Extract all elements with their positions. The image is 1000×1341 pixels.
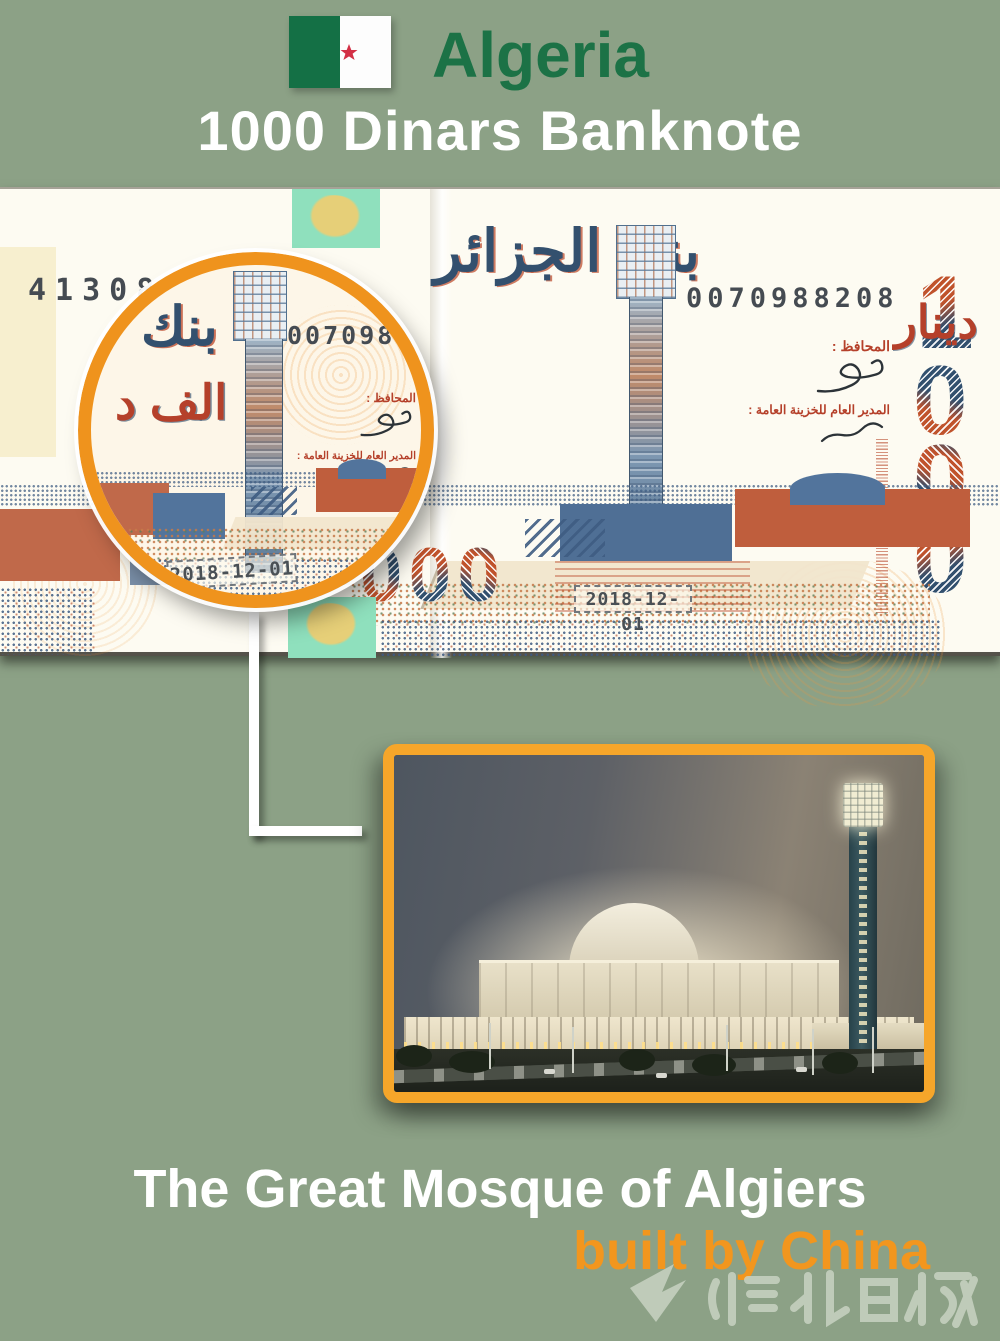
light-pole	[489, 1023, 491, 1069]
hologram-map-blob	[302, 603, 360, 649]
car	[544, 1069, 555, 1074]
governor-signature-icon	[348, 406, 416, 444]
page-subtitle: 1000 Dinars Banknote	[0, 98, 1000, 163]
magnifier-content: بنك الف د 0070988 المحافظ : المدير العام…	[91, 265, 421, 595]
hand-icon	[630, 1264, 686, 1322]
light-pole	[726, 1025, 728, 1071]
governor-label: المحافظ :	[291, 391, 416, 406]
signature-block: المحافظ : المدير العام للخزينة العامة :	[730, 337, 890, 445]
watermark-character	[908, 1276, 974, 1324]
minaret-drawing-cap	[616, 225, 676, 299]
tree	[619, 1049, 655, 1071]
magnified-serial-fragment: 0070988	[287, 321, 413, 350]
hubei-daily-watermark	[612, 1252, 992, 1341]
issue-date-stamp: 2018-12-01	[574, 585, 692, 613]
hologram-map-blob	[306, 195, 364, 241]
minaret-windows	[859, 823, 867, 1043]
magnified-thousand-word: الف د	[115, 375, 227, 431]
mosque-minaret	[849, 817, 877, 1049]
panorama-trees	[380, 619, 940, 656]
infographic-page: Algeria 1000 Dinars Banknote 41308 00709…	[0, 0, 1000, 1341]
algeria-flag	[289, 16, 391, 88]
light-pole	[872, 1027, 874, 1073]
minaret-lantern-top	[843, 783, 883, 827]
watermark-character	[794, 1274, 846, 1320]
hologram-africa-top	[292, 189, 380, 248]
magnifier-circle: بنك الف د 0070988 المحافظ : المدير العام…	[78, 252, 434, 608]
car	[656, 1073, 667, 1078]
governor-signature-icon	[800, 355, 890, 401]
watermark-character	[712, 1276, 776, 1322]
treasury-label: المدير العام للخزينة العامة :	[730, 401, 890, 419]
crescent-star-icon	[316, 28, 364, 76]
panorama-trees	[0, 587, 95, 655]
magnified-minaret-cap	[233, 271, 287, 341]
light-pole	[572, 1027, 574, 1073]
treasury-signature-icon	[812, 419, 890, 445]
page-title: Algeria	[432, 18, 649, 92]
tree	[396, 1045, 432, 1067]
light-pole	[812, 1029, 814, 1075]
tree	[692, 1054, 736, 1076]
great-mosque-photo	[383, 744, 935, 1103]
magnified-bank-word: بنك	[141, 295, 218, 358]
watermark-character	[864, 1282, 894, 1318]
governor-label: المحافظ :	[730, 337, 890, 355]
car	[796, 1067, 807, 1072]
tree	[822, 1052, 858, 1074]
hologram-africa-bottom	[288, 597, 376, 658]
panorama-arch-roof	[790, 473, 885, 505]
denomination-digit: 0	[457, 541, 501, 611]
panorama-steps	[251, 487, 297, 515]
panorama-arch-roof	[338, 459, 386, 479]
connector-line-vertical	[249, 612, 259, 836]
connector-line-horizontal	[249, 826, 362, 836]
panorama-steps	[525, 519, 605, 557]
caption-title: The Great Mosque of Algiers	[50, 1158, 950, 1220]
